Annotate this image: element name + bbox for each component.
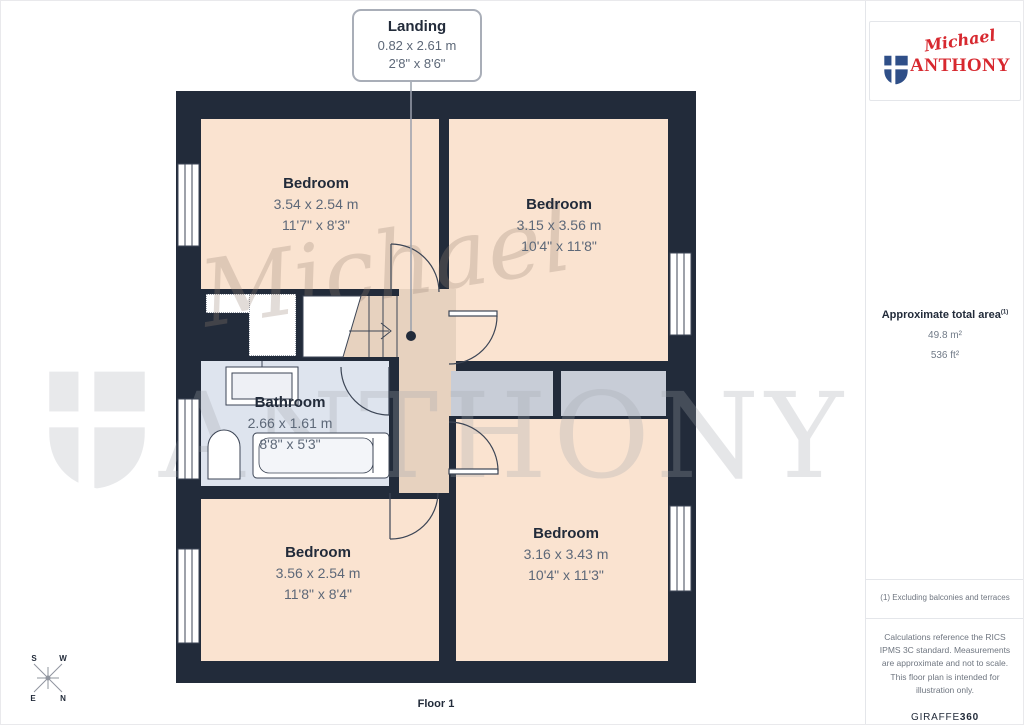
logo-name-text: ANTHONY [910,55,1011,77]
room-dim-imperial: 10'4" x 11'8" [453,236,665,257]
room-dim-metric: 3.15 x 3.56 m [453,215,665,236]
storage-cupboard-left [451,371,553,416]
room-name: Bedroom [461,523,671,544]
compass-labels: S W E N [30,654,67,703]
compass-w: W [59,654,67,663]
compass-n: N [60,694,66,703]
compass-s: S [31,654,37,663]
room-label-bedroom-top-right: Bedroom 3.15 x 3.56 m 10'4" x 11'8" [453,194,665,257]
room-label-bedroom-top-left: Bedroom 3.54 x 2.54 m 11'7" x 8'3" [206,173,426,236]
watermark-shield-icon [41,369,153,491]
compass-e: E [30,694,36,703]
logo-script-text: Michael [923,26,997,56]
room-dim-imperial: 11'7" x 8'3" [206,215,426,236]
room-label-bedroom-bottom-right: Bedroom 3.16 x 3.43 m 10'4" x 11'3" [461,523,671,586]
compass-icon [34,664,62,692]
room-dim-imperial: 8'8" x 5'3" [199,434,381,455]
room-dim-metric: 2.66 x 1.61 m [199,413,381,434]
room-dim-metric: 3.54 x 2.54 m [206,194,426,215]
giraffe-text: GIRAFFE [911,712,960,723]
landing-callout: Landing 0.82 x 2.61 m 2'8" x 8'6" [352,9,482,82]
room-label-bedroom-bottom-left: Bedroom 3.56 x 2.54 m 11'8" x 8'4" [209,542,427,605]
giraffe-360-text: 360 [960,712,979,723]
storage-cupboard-right [561,371,666,416]
room-name: Bedroom [453,194,665,215]
callout-metric: 0.82 x 2.61 m [358,37,476,55]
total-area-block: Approximate total area(1) 49.8 m² 536 ft… [866,309,1024,361]
room-name: Bedroom [206,173,426,194]
room-dim-imperial: 10'4" x 11'3" [461,565,671,586]
agency-logo: Michael ANTHONY [869,21,1021,101]
total-area-label-text: Approximate total area [882,309,1001,321]
shield-icon [883,55,909,85]
room-dim-imperial: 11'8" x 8'4" [209,584,427,605]
total-area-metric: 49.8 m² [866,330,1024,341]
disclaimer-block: Calculations reference the RICS IPMS 3C … [866,618,1024,725]
room-dim-metric: 3.56 x 2.54 m [209,563,427,584]
total-area-note-ref: (1) [1001,309,1008,315]
floorplan-page: Michael ANTHONY [0,0,1024,725]
room-dim-metric: 3.16 x 3.43 m [461,544,671,565]
total-area-label: Approximate total area(1) [866,309,1024,321]
callout-imperial: 2'8" x 8'6" [358,55,476,73]
eaves-storage [249,294,296,356]
landing-area [399,289,456,493]
floor-caption: Floor 1 [336,698,536,710]
area-footnote: (1) Excluding balconies and terraces [866,579,1024,615]
disclaimer-text: Calculations reference the RICS IPMS 3C … [879,631,1011,697]
info-sidebar: Michael ANTHONY Approximate total area(1… [865,1,1024,724]
giraffe360-brand: GIRAFFE360 [879,710,1011,725]
wall-segment [449,416,456,493]
stairs-area [303,296,399,357]
room-label-bathroom: Bathroom 2.66 x 1.61 m 8'8" x 5'3" [199,392,381,455]
callout-title: Landing [358,16,476,37]
total-area-imperial: 536 ft² [866,350,1024,361]
room-name: Bathroom [199,392,381,413]
room-name: Bedroom [209,542,427,563]
